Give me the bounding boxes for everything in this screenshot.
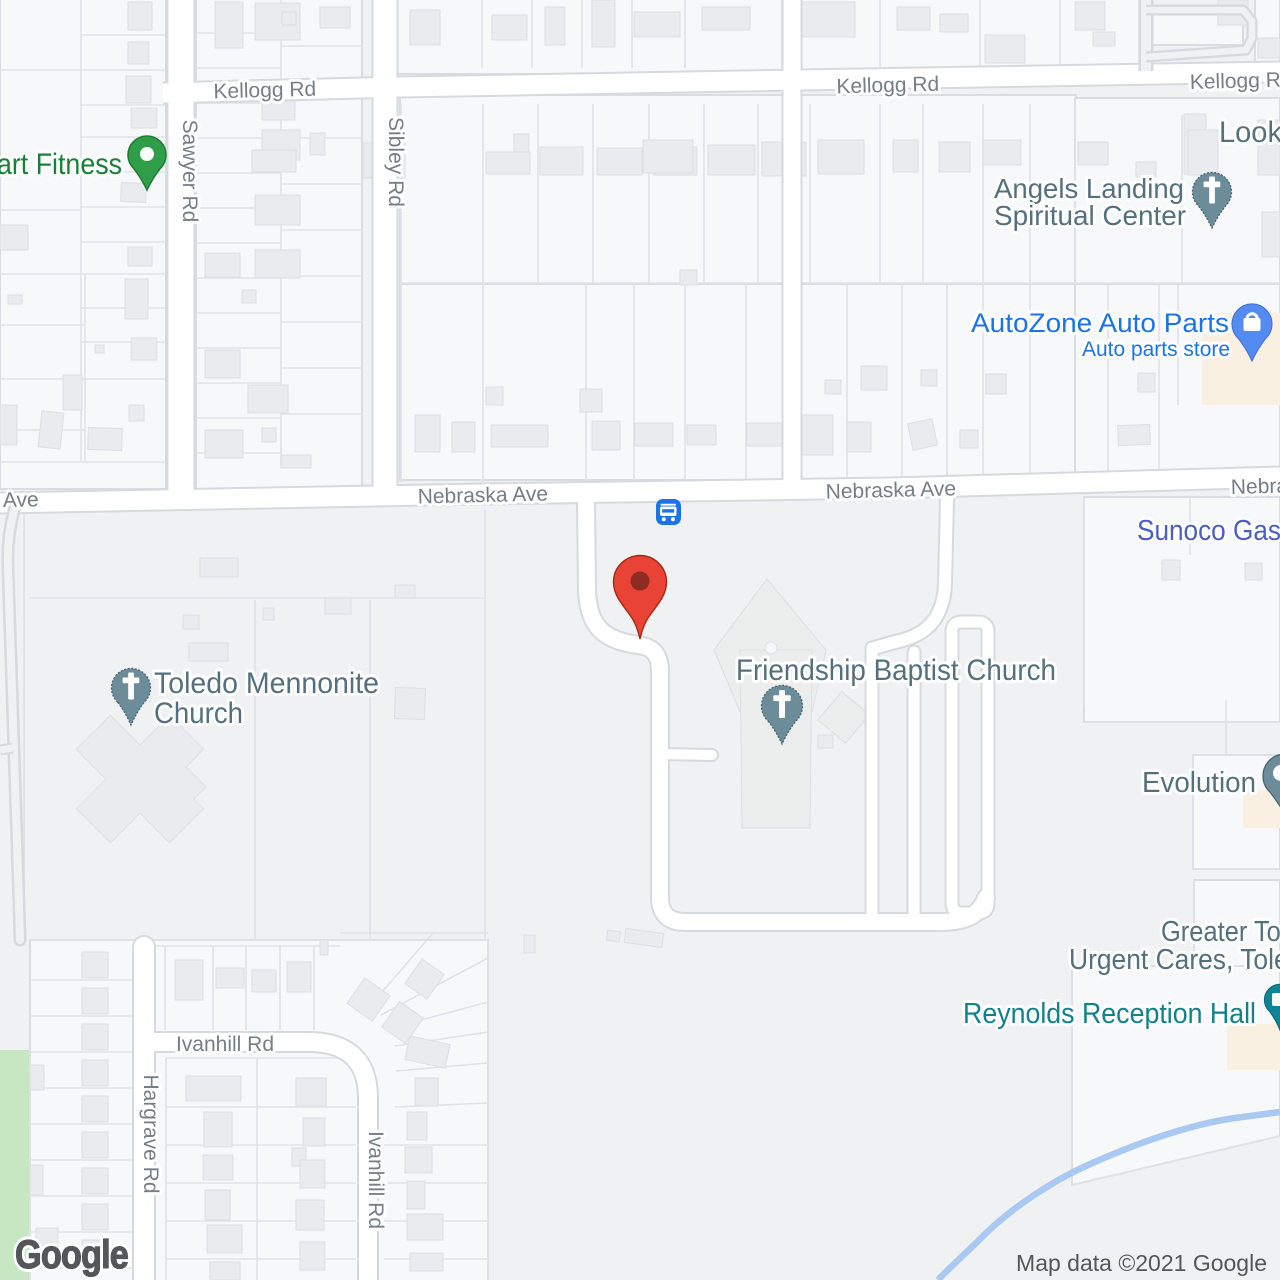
- svg-text:Map data ©2021 Google: Map data ©2021 Google: [1016, 1250, 1267, 1276]
- svg-text:Sibley Rd: Sibley Rd: [384, 117, 407, 207]
- svg-text:Evolution: Evolution: [1142, 767, 1256, 799]
- svg-text:Ivanhill Rd: Ivanhill Rd: [364, 1131, 387, 1229]
- svg-text:Kellogg Rd: Kellogg Rd: [1190, 68, 1280, 94]
- svg-text:Nebraska Ave: Nebraska Ave: [417, 483, 548, 509]
- svg-text:Spiritual Center: Spiritual Center: [994, 200, 1186, 231]
- svg-text:Urgent Cares, Toledo: Urgent Cares, Toledo: [1069, 944, 1280, 976]
- svg-text:Sawyer Rd: Sawyer Rd: [178, 120, 201, 223]
- svg-text:Google: Google: [15, 1233, 128, 1277]
- svg-text:Nebraska Ave: Nebraska Ave: [1231, 473, 1280, 499]
- svg-text:Reynolds Reception Hall: Reynolds Reception Hall: [963, 998, 1256, 1030]
- svg-text:art Fitness: art Fitness: [0, 148, 122, 181]
- svg-text:Look: Look: [1219, 116, 1280, 149]
- svg-text:Nebraska Ave: Nebraska Ave: [825, 477, 956, 503]
- svg-text:Ave: Ave: [3, 488, 39, 512]
- svg-text:Hargrave Rd: Hargrave Rd: [139, 1074, 162, 1193]
- svg-text:Kellogg Rd: Kellogg Rd: [213, 78, 316, 104]
- svg-text:Auto parts store: Auto parts store: [1082, 338, 1230, 361]
- svg-text:Friendship Baptist Church: Friendship Baptist Church: [736, 654, 1056, 687]
- svg-text:AutoZone Auto Parts: AutoZone Auto Parts: [971, 308, 1229, 338]
- svg-text:Toledo Mennonite: Toledo Mennonite: [154, 667, 379, 700]
- svg-text:Ivanhill Rd: Ivanhill Rd: [176, 1033, 274, 1056]
- svg-text:Sunoco Gas: Sunoco Gas: [1137, 515, 1280, 547]
- svg-text:Church: Church: [154, 697, 243, 730]
- svg-text:Kellogg Rd: Kellogg Rd: [836, 73, 939, 99]
